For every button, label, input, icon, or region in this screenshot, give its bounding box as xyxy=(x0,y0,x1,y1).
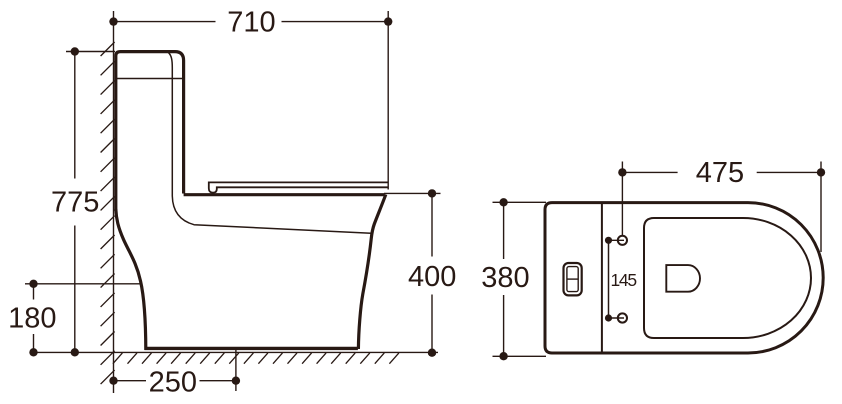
svg-text:380: 380 xyxy=(481,262,529,294)
svg-text:710: 710 xyxy=(227,7,275,39)
svg-text:250: 250 xyxy=(149,366,197,398)
svg-text:145: 145 xyxy=(611,270,637,290)
svg-text:180: 180 xyxy=(8,303,56,335)
svg-text:475: 475 xyxy=(696,157,744,189)
svg-text:775: 775 xyxy=(51,187,99,219)
svg-text:400: 400 xyxy=(408,261,456,293)
